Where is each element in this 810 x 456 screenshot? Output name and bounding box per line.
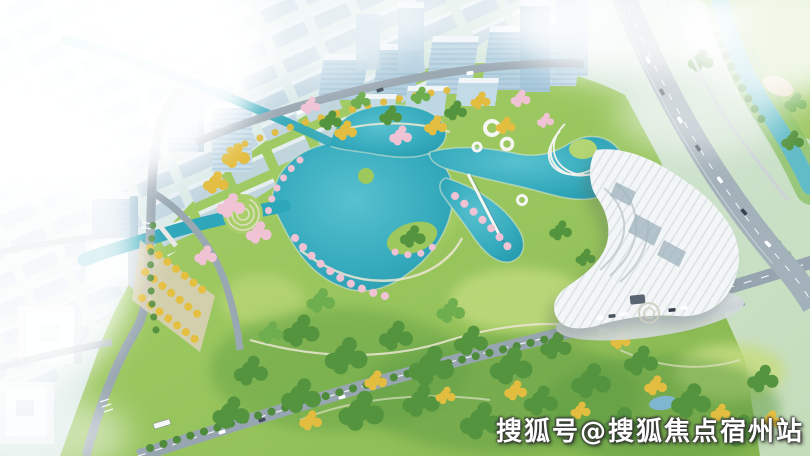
render-scene — [0, 0, 810, 456]
watermark-text: 搜狐号@搜狐焦点宿州站 — [496, 411, 804, 448]
aerial-render-image: 搜狐号@搜狐焦点宿州站 — [0, 0, 810, 456]
building-entrance — [630, 294, 646, 305]
